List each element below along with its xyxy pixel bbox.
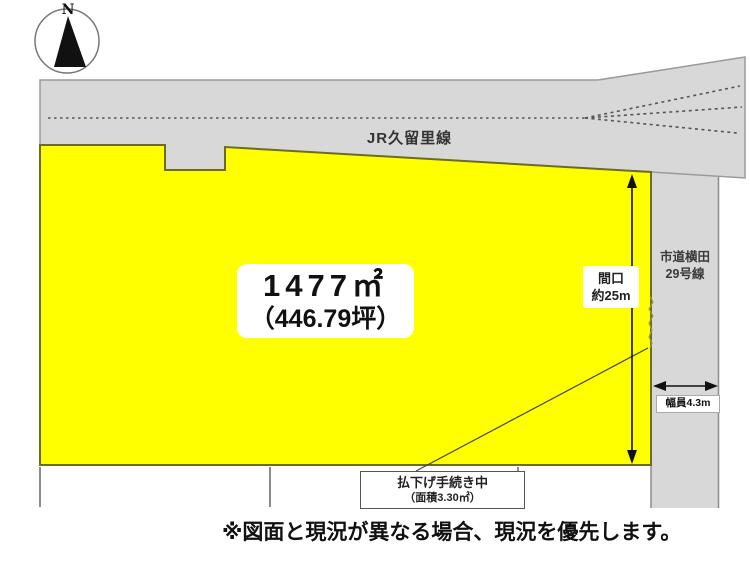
north-arrow-icon	[54, 16, 86, 67]
road-name-label: 市道横田 29号線	[652, 249, 718, 283]
area-sqm-text: 1477㎡	[237, 268, 414, 304]
compass-north-label: N	[59, 2, 77, 18]
land-plot-diagram: N JR久留里線 1477㎡ （446.79坪） 間口 約25m 市道横田 29…	[0, 0, 750, 563]
road-area	[651, 172, 719, 508]
area-label-box: 1477㎡ （446.79坪）	[237, 264, 414, 338]
procedure-note-box: 払下げ手続き中 （面積3.30㎡）	[360, 471, 525, 509]
railway-name-label: JR久留里線	[352, 127, 467, 148]
road-width-label: 幅員4.3m	[656, 395, 720, 413]
footnote-text: ※図面と現況が異なる場合、現況を優先します。	[222, 516, 742, 546]
area-tsubo-text: （446.79坪）	[237, 304, 414, 335]
frontage-title: 間口	[583, 270, 639, 287]
frontage-value: 約25m	[583, 287, 639, 304]
procedure-status-text: 払下げ手続き中	[361, 475, 524, 491]
procedure-area-text: （面積3.30㎡）	[361, 491, 524, 505]
frontage-label-box: 間口 約25m	[583, 266, 639, 308]
road-name-line2: 29号線	[652, 266, 718, 283]
road-name-line1: 市道横田	[652, 249, 718, 266]
